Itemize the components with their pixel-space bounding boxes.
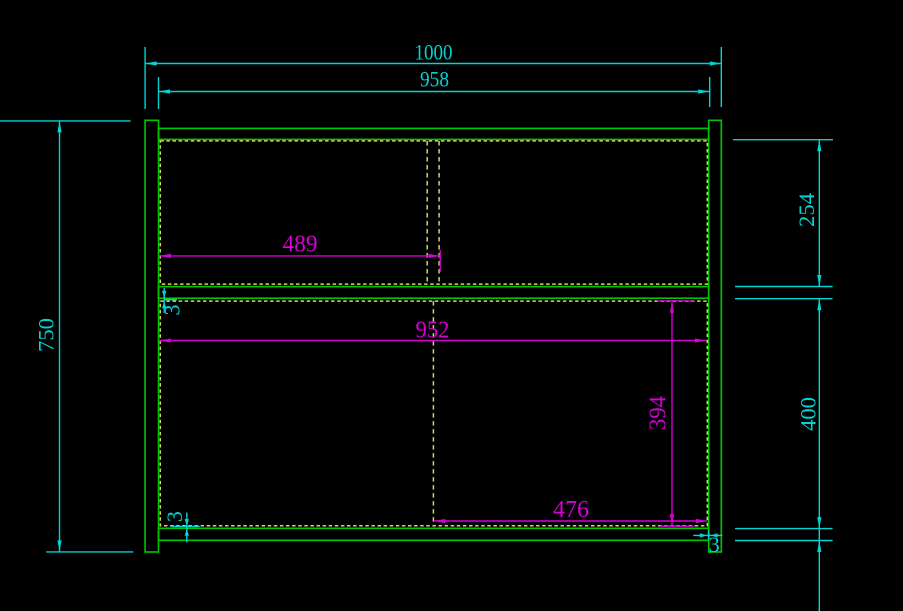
svg-text:489: 489 [283, 232, 318, 258]
svg-text:3: 3 [162, 511, 187, 522]
svg-text:400: 400 [796, 397, 821, 431]
svg-text:1000: 1000 [415, 40, 453, 65]
svg-text:254: 254 [794, 193, 819, 227]
svg-text:394: 394 [645, 396, 671, 430]
svg-text:952: 952 [416, 318, 450, 344]
svg-text:3: 3 [709, 532, 720, 557]
svg-text:3: 3 [159, 305, 184, 316]
svg-text:750: 750 [33, 318, 58, 352]
svg-text:958: 958 [420, 67, 449, 92]
svg-text:476: 476 [553, 497, 589, 523]
